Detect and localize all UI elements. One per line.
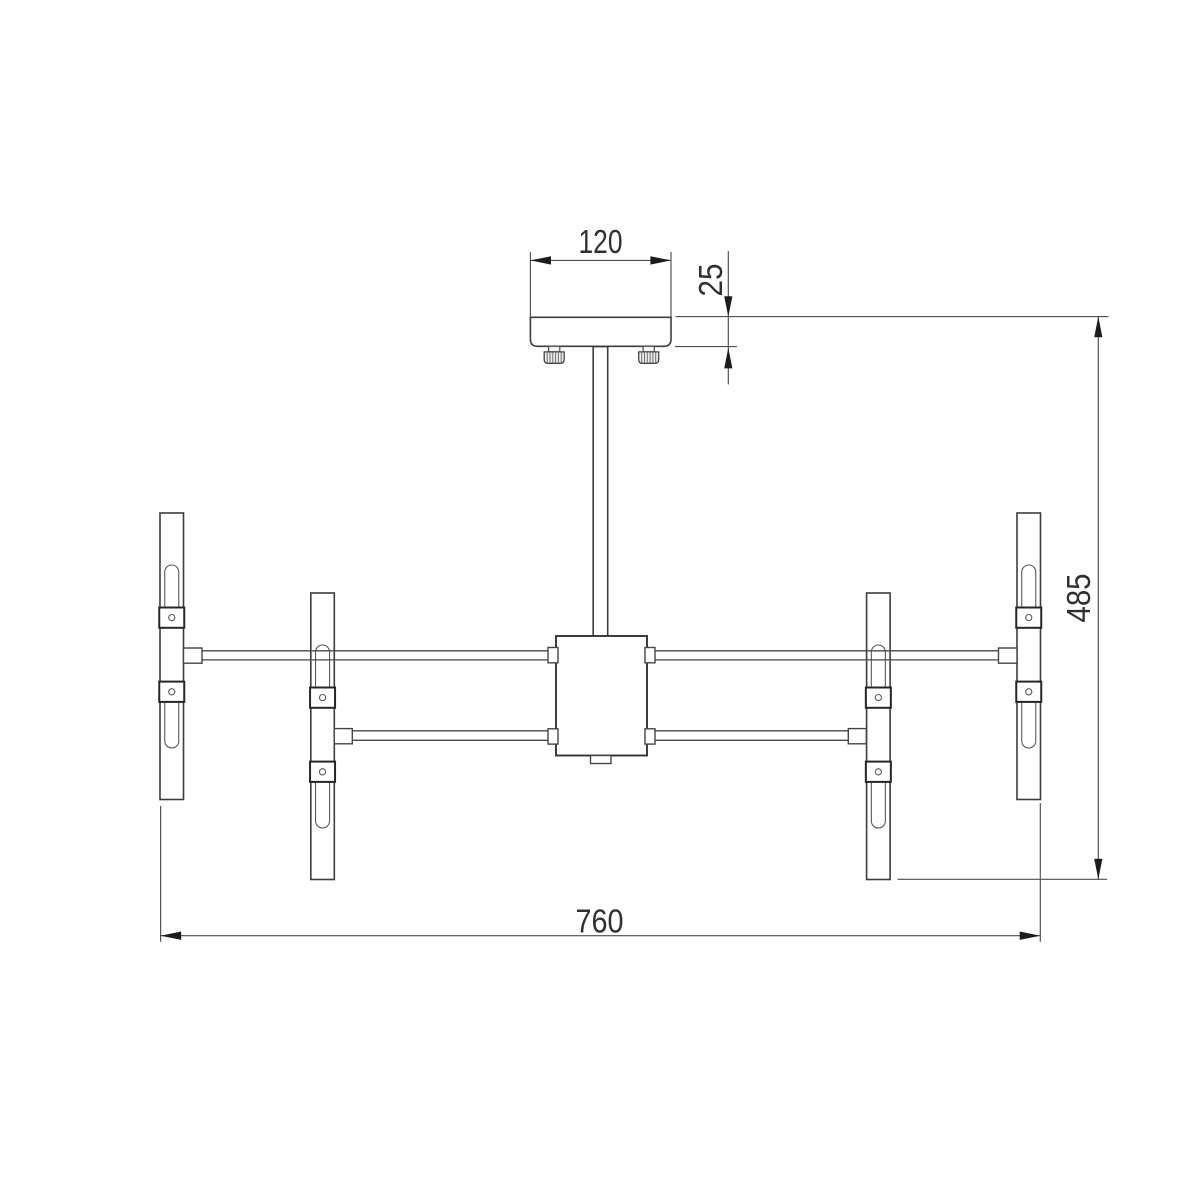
dim-label-overall-height: 485 [1060, 574, 1097, 623]
dimension-overall-height: 485 [676, 317, 1109, 880]
lamp-bar-outer-right [1016, 513, 1041, 800]
arrow-up-icon [1094, 317, 1102, 338]
arm-lower-left [351, 731, 552, 741]
arm-coupler-outer-left [184, 648, 203, 663]
dimension-canopy-width: 120 [530, 223, 671, 317]
arrow-down-icon [724, 296, 732, 316]
arm-upper-left [200, 651, 552, 660]
screw-neck [643, 346, 654, 352]
arrow-left-icon [530, 256, 551, 264]
arrow-up-icon [724, 348, 732, 368]
hub-socket-lower-right [645, 729, 655, 744]
dimension-canopy-thickness: 25 [675, 251, 737, 385]
canopy-plate [530, 317, 671, 346]
hub-socket-upper-left [548, 648, 558, 663]
arrow-left-icon [161, 932, 182, 940]
arm-coupler-inner-left [334, 729, 352, 744]
dimension-overall-width: 760 [161, 803, 1041, 942]
dim-label-overall-width: 760 [576, 903, 624, 940]
hub-bottom-cap [591, 756, 612, 764]
screw-neck [549, 346, 560, 352]
arrow-down-icon [1094, 859, 1102, 880]
lamp-bar-inner-right [866, 593, 891, 880]
arrow-right-icon [1020, 932, 1041, 940]
dim-label-canopy-width: 120 [579, 223, 623, 260]
stem [593, 347, 608, 637]
arrow-right-icon [650, 256, 671, 264]
arm-lower-right [650, 731, 850, 741]
hub-body [556, 636, 647, 756]
arm-coupler-outer-right [999, 648, 1018, 663]
chandelier-dimension-drawing: 120 25 485 760 [0, 0, 1200, 1200]
hub-socket-upper-right [645, 648, 655, 663]
dim-label-canopy-thickness: 25 [692, 264, 729, 297]
central-hub [548, 636, 655, 764]
lamp-bar-outer-left [159, 513, 184, 800]
canopy-screw-right [639, 346, 659, 363]
arm-coupler-inner-right [848, 729, 866, 744]
canopy-screw-left [544, 346, 564, 363]
hub-socket-lower-left [548, 729, 558, 744]
arm-upper-right [650, 651, 1001, 660]
lamp-bar-inner-left [310, 593, 335, 880]
